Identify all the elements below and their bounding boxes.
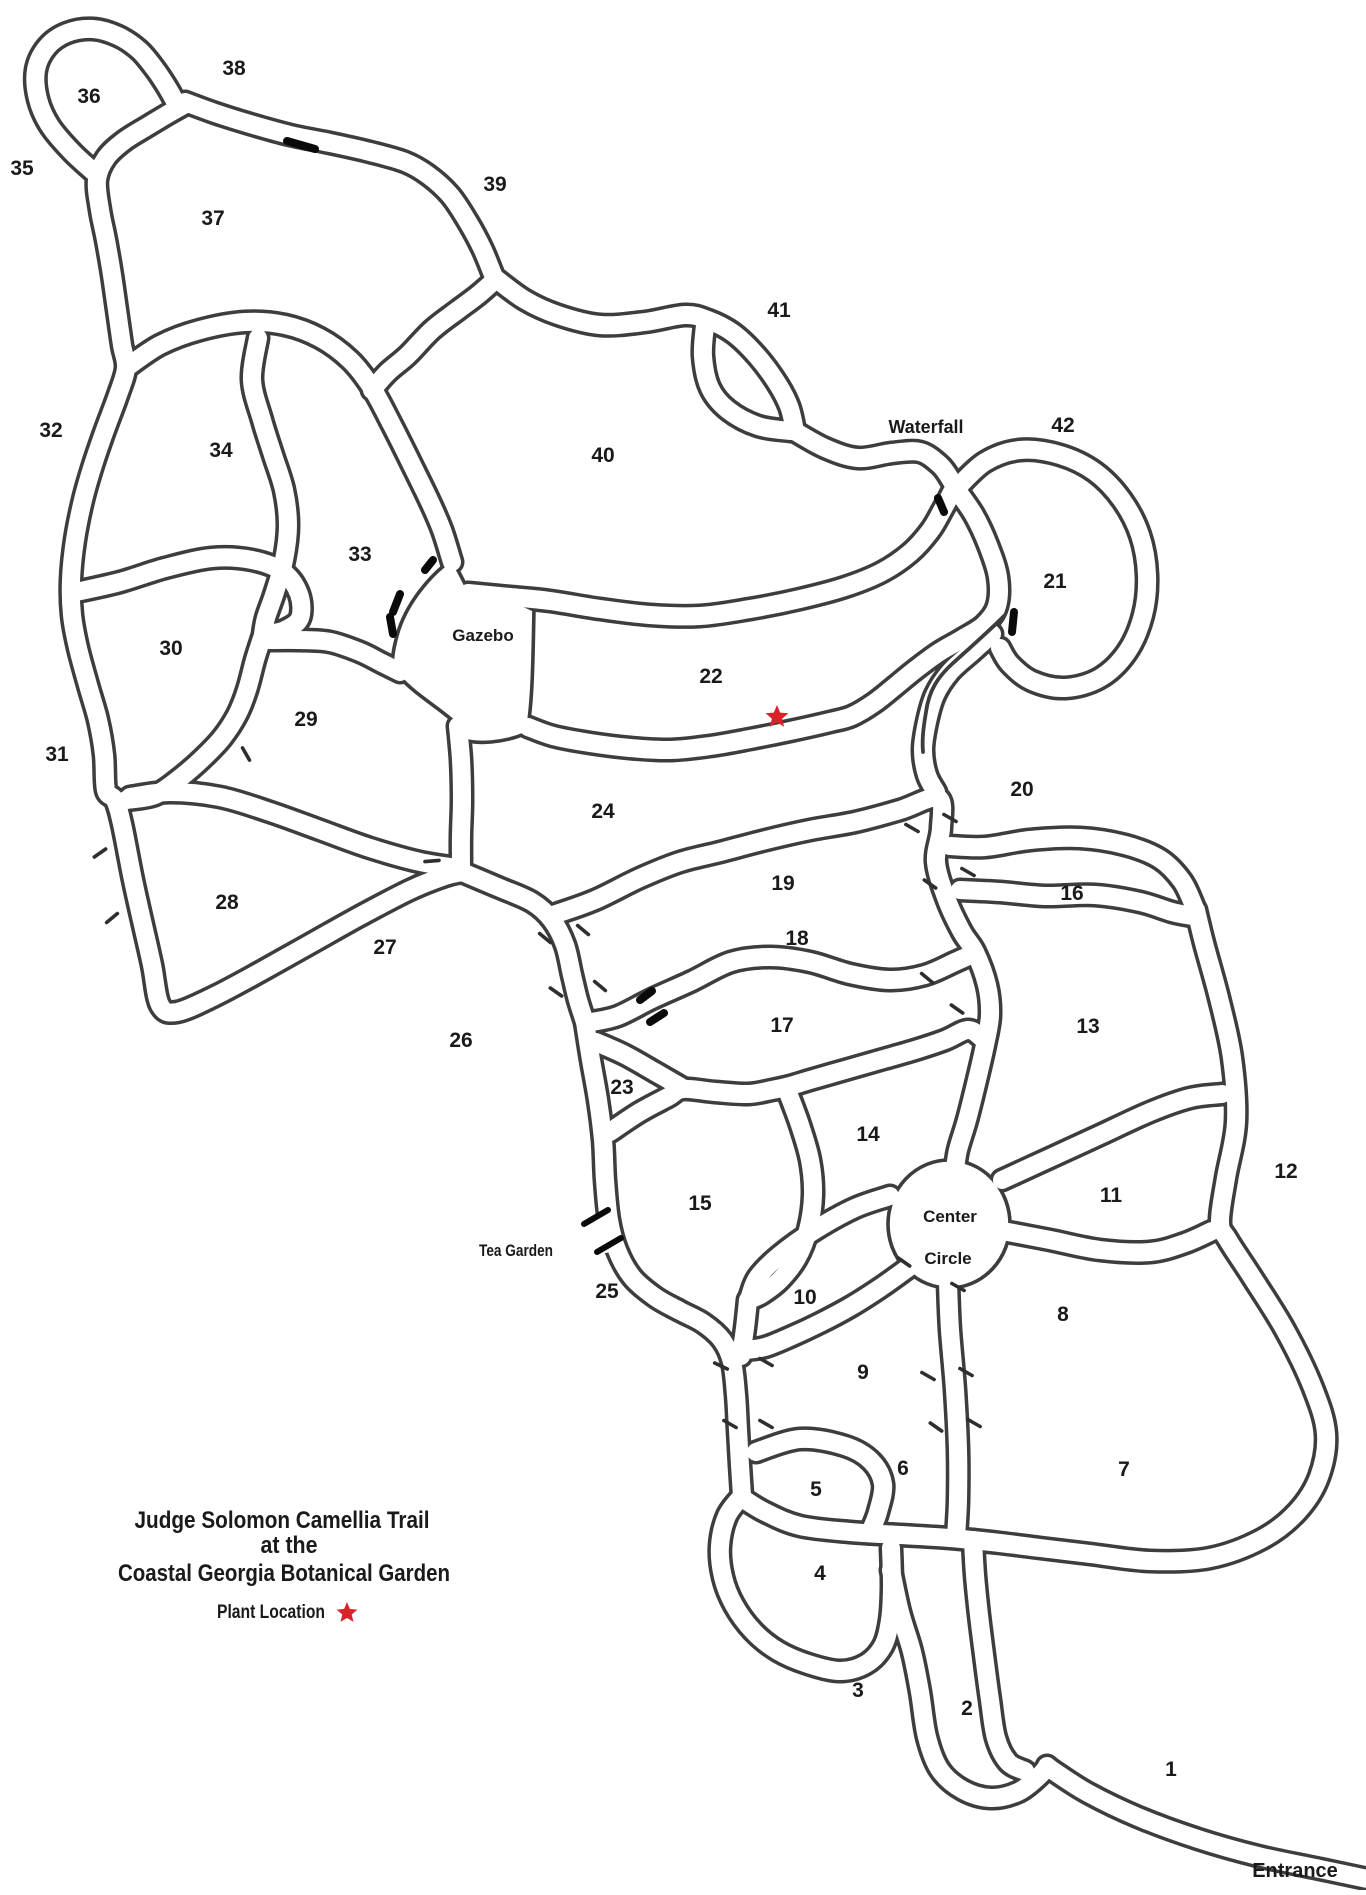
svg-text:22: 22 — [699, 665, 722, 688]
svg-text:4: 4 — [814, 1562, 826, 1585]
svg-text:Gazebo: Gazebo — [452, 626, 513, 645]
svg-text:at the: at the — [261, 1532, 318, 1559]
svg-text:38: 38 — [222, 57, 246, 80]
svg-text:29: 29 — [294, 708, 317, 731]
svg-text:36: 36 — [77, 85, 100, 108]
svg-text:8: 8 — [1057, 1303, 1069, 1326]
svg-text:14: 14 — [856, 1123, 880, 1146]
svg-text:20: 20 — [1010, 778, 1033, 801]
svg-text:42: 42 — [1051, 414, 1074, 437]
svg-text:33: 33 — [348, 543, 371, 566]
svg-text:Circle: Circle — [924, 1249, 971, 1268]
svg-text:Judge Solomon Camellia Trail: Judge Solomon Camellia Trail — [135, 1507, 430, 1534]
svg-text:16: 16 — [1060, 882, 1083, 905]
svg-text:17: 17 — [770, 1014, 793, 1037]
svg-text:6: 6 — [897, 1457, 909, 1480]
svg-text:Plant Location: Plant Location — [217, 1602, 325, 1623]
svg-text:9: 9 — [857, 1361, 869, 1384]
svg-text:1: 1 — [1165, 1758, 1177, 1781]
svg-text:7: 7 — [1118, 1458, 1130, 1481]
svg-text:2: 2 — [961, 1697, 973, 1720]
svg-text:23: 23 — [610, 1076, 633, 1099]
svg-text:Center: Center — [923, 1207, 977, 1226]
svg-text:40: 40 — [591, 444, 614, 467]
svg-text:34: 34 — [209, 439, 233, 462]
svg-text:Tea Garden: Tea Garden — [479, 1241, 553, 1260]
svg-text:15: 15 — [688, 1192, 712, 1215]
svg-text:39: 39 — [483, 173, 506, 196]
svg-text:24: 24 — [591, 800, 615, 823]
svg-text:11: 11 — [1100, 1184, 1123, 1207]
svg-text:32: 32 — [39, 419, 62, 442]
svg-text:21: 21 — [1043, 570, 1067, 593]
svg-text:5: 5 — [810, 1478, 822, 1501]
svg-text:31: 31 — [45, 743, 69, 766]
svg-text:Coastal Georgia Botanical Gard: Coastal Georgia Botanical Garden — [118, 1560, 450, 1587]
svg-text:30: 30 — [159, 637, 182, 660]
svg-text:26: 26 — [449, 1029, 472, 1052]
svg-text:25: 25 — [595, 1280, 619, 1303]
svg-text:Waterfall: Waterfall — [889, 417, 964, 437]
svg-text:19: 19 — [771, 872, 794, 895]
svg-text:35: 35 — [10, 157, 34, 180]
svg-text:Entrance: Entrance — [1252, 1860, 1338, 1882]
svg-text:3: 3 — [852, 1679, 864, 1702]
svg-text:37: 37 — [201, 207, 224, 230]
svg-text:28: 28 — [215, 891, 239, 914]
svg-text:12: 12 — [1274, 1160, 1297, 1183]
svg-text:18: 18 — [785, 927, 809, 950]
svg-text:13: 13 — [1076, 1015, 1099, 1038]
svg-text:27: 27 — [373, 936, 396, 959]
svg-text:41: 41 — [767, 299, 791, 322]
svg-text:10: 10 — [793, 1286, 816, 1309]
